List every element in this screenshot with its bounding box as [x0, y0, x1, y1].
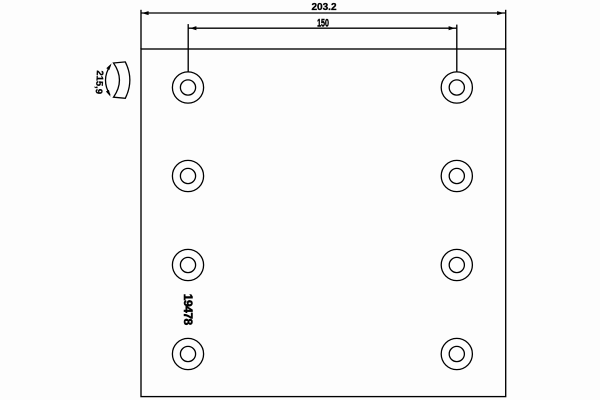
svg-text:203.2: 203.2 [311, 2, 336, 13]
svg-text:150: 150 [317, 17, 329, 29]
svg-text:215,9: 215,9 [93, 70, 105, 94]
svg-text:19478: 19478 [181, 294, 195, 326]
